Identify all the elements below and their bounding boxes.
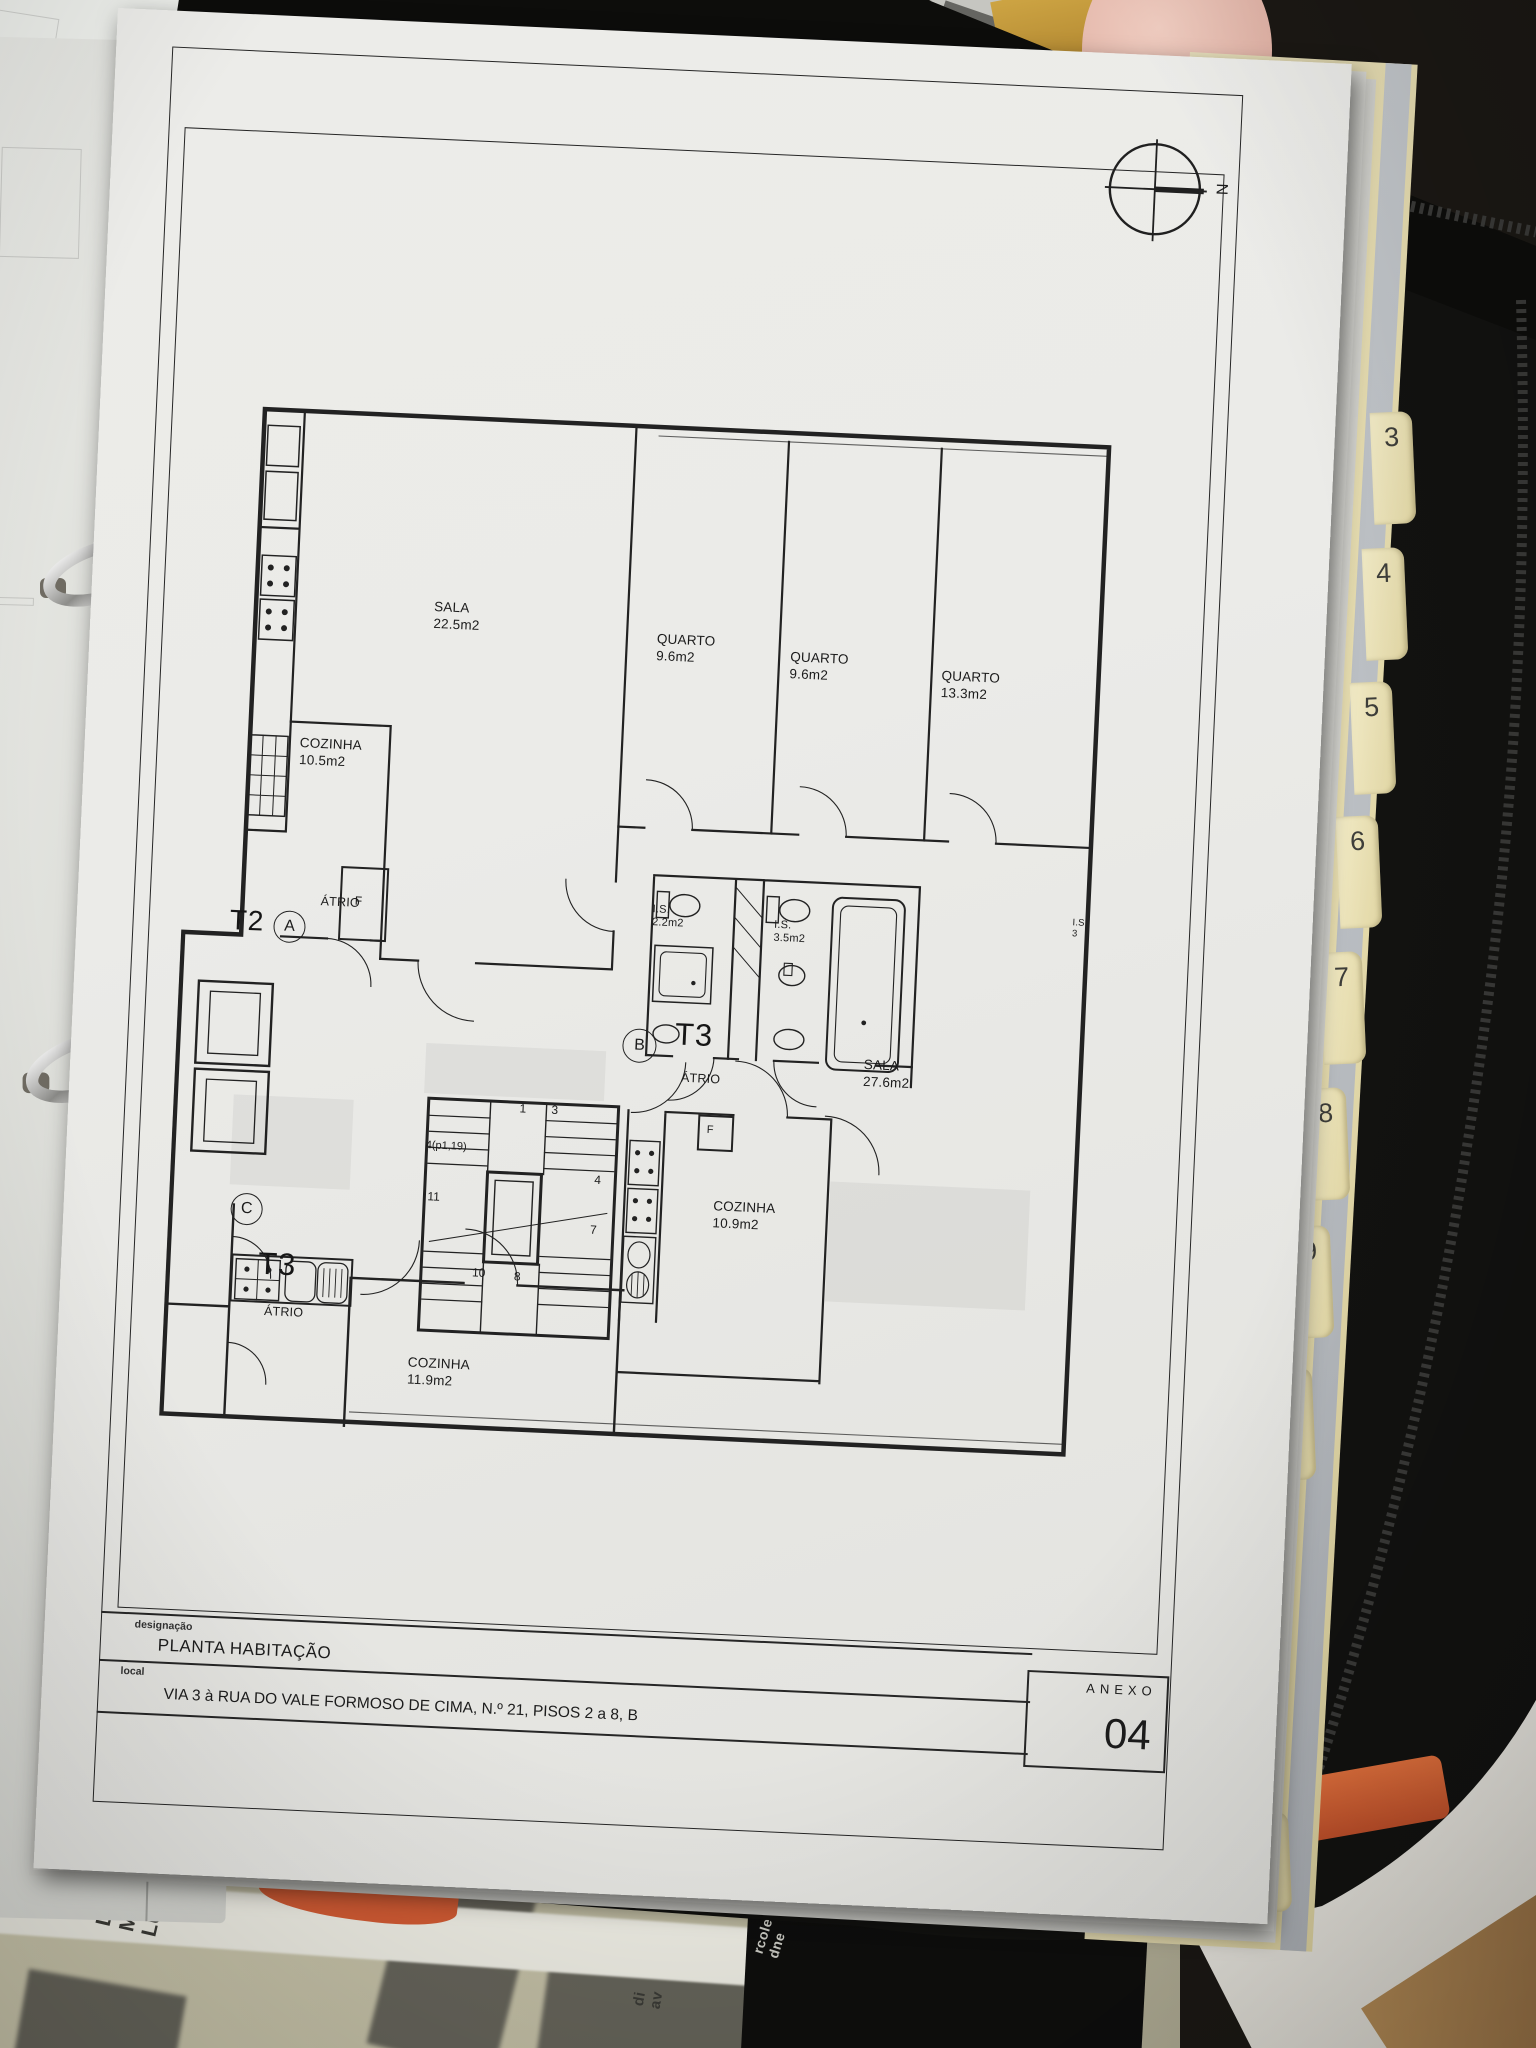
marquise-box [264, 471, 298, 520]
sink-hatch [631, 1273, 644, 1298]
tab-label: 7 [1333, 962, 1352, 1065]
room-area: 3.5m2 [773, 931, 805, 945]
room-name: SALA [863, 1057, 910, 1076]
room-name: SALA [434, 599, 481, 618]
room-area: 27.6m2 [863, 1074, 910, 1093]
room-area: 2.2m2 [652, 916, 684, 930]
counter-grid-lines [247, 735, 289, 817]
room-area: 9.6m2 [789, 666, 848, 686]
unit-letter: C [240, 1200, 252, 1219]
shaft-box [195, 981, 273, 1066]
unit-c-type: T3 [257, 1246, 297, 1284]
room-label-quarto1: QUARTO 9.6m2 [656, 631, 716, 667]
stair-number: 4 [594, 1173, 601, 1187]
room-name: I.S. [774, 919, 806, 933]
door-arc [629, 1060, 883, 1174]
drain [861, 1020, 866, 1025]
unit-a-type: T2 [229, 904, 265, 938]
local-label: local [120, 1665, 144, 1678]
bedroom-walls [771, 442, 942, 841]
bathtub-inner [834, 906, 897, 1064]
room-area: 10.9m2 [712, 1215, 775, 1235]
designacao-label: designação [134, 1618, 192, 1633]
stair-number: 8 [514, 1269, 521, 1283]
stove-symbol [259, 599, 295, 641]
shaft-box-inner [208, 991, 261, 1055]
stair-number: 3 [551, 1103, 558, 1117]
stove-symbol [628, 1140, 660, 1185]
tab-label: 3 [1383, 422, 1402, 525]
stove-burners [265, 564, 290, 631]
stove-symbol [626, 1188, 658, 1233]
tab-label: 8 [1317, 1098, 1336, 1201]
room-area: 3 [1072, 929, 1088, 941]
door-arc [733, 1061, 789, 1117]
index-tab-6[interactable]: 6 [1336, 815, 1383, 929]
room-label-is1: I.S. 2.2m2 [652, 903, 685, 930]
anexo-label: ANEXO [1086, 1681, 1157, 1699]
designacao-value: PLANTA HABITAÇÃO [157, 1635, 331, 1663]
unit-b-hall: ÁTRIO [681, 1071, 721, 1088]
fridge-label-a: F [354, 894, 362, 908]
stair-flight-edges [480, 1101, 546, 1335]
faint-print [0, 147, 82, 259]
drawing-sheet[interactable]: N [34, 8, 1352, 1924]
room-label-sala-a: SALA 22.5m2 [433, 599, 481, 635]
unit-letter: A [284, 917, 295, 935]
drain [691, 981, 696, 986]
room-label-quarto3: QUARTO 13.3m2 [940, 668, 1000, 704]
index-tab-4[interactable]: 4 [1362, 547, 1409, 661]
unit-b-type: T3 [674, 1016, 714, 1054]
room-label-cozinha-c: COZINHA 11.9m2 [407, 1355, 471, 1392]
door-arc [415, 873, 615, 1028]
room-area: 9.6m2 [656, 648, 715, 668]
room-label-cozinha-b: COZINHA 10.9m2 [712, 1198, 776, 1235]
room-name: I.S. [652, 903, 684, 917]
door-arc [325, 938, 373, 986]
photo-scene: Lundi Montag Lunes rcole dne di av Ma Di [0, 0, 1536, 2048]
room-area: 11.9m2 [407, 1371, 470, 1391]
floor-plan: SALA 22.5m2 QUARTO 9.6m2 QUARTO 9.6m2 QU… [158, 392, 1154, 1479]
stair-number: 7 [590, 1223, 597, 1237]
room-area: 13.3m2 [940, 685, 999, 705]
stair-number: 10 [472, 1265, 486, 1280]
floor-plan-drawing [158, 392, 1154, 1479]
stair-number: 11 [427, 1189, 440, 1204]
sink [773, 1029, 804, 1050]
stairwell [418, 1098, 618, 1338]
sink-bowl [316, 1262, 348, 1303]
stair-number: 4(p1,19) [425, 1139, 466, 1153]
index-tab-5[interactable]: 5 [1350, 681, 1397, 795]
anexo-number: 04 [1103, 1710, 1152, 1760]
room-label-is2: I.S. 3.5m2 [773, 919, 806, 946]
sala-a-walls [380, 415, 636, 969]
door-arc [644, 780, 998, 844]
room-label-is-edge: I.S. 3 [1072, 918, 1088, 941]
corridor-wall [618, 827, 1091, 848]
lift-car [492, 1180, 533, 1256]
room-label-quarto2: QUARTO 9.6m2 [789, 649, 849, 685]
tab-label: 5 [1363, 692, 1382, 795]
compass-north-pointer [1155, 189, 1204, 191]
unit-letter: B [634, 1036, 645, 1054]
room-label-sala-b: SALA 27.6m2 [863, 1057, 911, 1093]
anexo-box: ANEXO 04 [1023, 1670, 1169, 1773]
compass-n-label: N [1212, 183, 1231, 195]
sink-hatch [323, 1269, 342, 1298]
stair-break-line [429, 1205, 606, 1249]
marquise-box [266, 425, 300, 466]
room-area: 22.5m2 [433, 616, 480, 635]
sink-double [621, 1236, 656, 1303]
sink-bowl [627, 1241, 650, 1268]
room-label-cozinha-a: COZINHA 10.5m2 [299, 735, 363, 772]
unit-c-hall: ÁTRIO [264, 1304, 304, 1321]
tab-label: 6 [1349, 826, 1368, 929]
north-compass: N [1096, 133, 1221, 254]
unit-c-walls [161, 1202, 626, 1438]
stair-number: 1 [519, 1101, 526, 1115]
index-tab-3[interactable]: 3 [1370, 411, 1417, 525]
duct-hatch [732, 887, 764, 978]
fridge-label-b: F [706, 1124, 713, 1136]
tab-label: 4 [1375, 558, 1394, 661]
stove-symbol [261, 555, 297, 597]
local-value: VIA 3 à RUA DO VALE FORMOSO DE CIMA, N.º… [163, 1686, 638, 1726]
fridge-box-b [698, 1116, 734, 1152]
room-area: 10.5m2 [299, 752, 362, 772]
shower-inner [659, 952, 707, 998]
compass-graphic [1096, 133, 1221, 254]
